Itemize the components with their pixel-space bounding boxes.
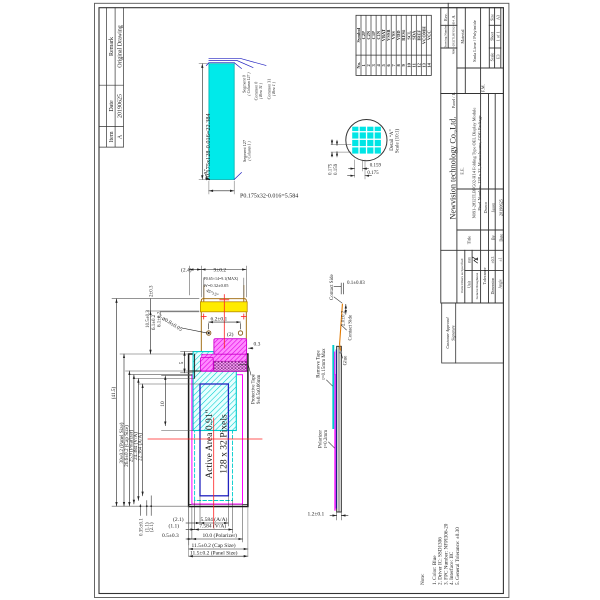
svg-text:(41.5): (41.5)	[110, 386, 117, 399]
svg-text:Jason: Jason	[491, 202, 496, 212]
svg-text:1.2±0.1: 1.2±0.1	[308, 512, 325, 518]
svg-text:Contact Side: Contact Side	[349, 314, 354, 340]
svg-text:(2.1): (2.1)	[173, 516, 184, 523]
svg-text:±0.3: ±0.3	[491, 256, 495, 263]
svg-text:P0.65×14=9.1(MAX): P0.65×14=9.1(MAX)	[204, 276, 239, 281]
svg-text:Soda Lime / Polyimide: Soda Lime / Polyimide	[472, 20, 477, 62]
svg-text:5.584 (A/A): 5.584 (A/A)	[201, 516, 228, 523]
svg-text:20190625: 20190625	[498, 199, 503, 216]
svg-text:F.M.: F.M.	[480, 84, 485, 92]
svg-text:t=0.15mm Max: t=0.15mm Max	[322, 348, 327, 380]
svg-text:( Row 31 ): ( Row 31 )	[259, 82, 263, 99]
svg-text:128 x 32 Pixels: 128 x 32 Pixels	[219, 414, 230, 474]
svg-text:Common 0: Common 0	[253, 82, 258, 101]
svg-text:0.159: 0.159	[370, 164, 382, 169]
svg-text:Detail “A”: Detail “A”	[389, 129, 395, 151]
svg-text:Drawn: Drawn	[483, 201, 488, 213]
svg-text:Drawing Number: Drawing Number	[444, 24, 448, 49]
svg-text:Date: Date	[109, 100, 115, 112]
svg-text:0.175: 0.175	[329, 163, 334, 175]
svg-text:9±0.2: 9±0.2	[214, 267, 227, 273]
svg-text:VCC: VCC	[426, 30, 431, 40]
svg-text:2±0.3: 2±0.3	[150, 285, 155, 297]
svg-text:A″: A″	[204, 169, 210, 175]
svg-text:Unit: Unit	[467, 280, 471, 288]
svg-text:2.0±0.2: 2.0±0.2	[342, 310, 347, 326]
svg-text:Protective Tape: Protective Tape	[252, 374, 257, 404]
svg-text:5: 5	[179, 361, 185, 364]
svg-text:Date: Date	[498, 234, 503, 242]
svg-text:( Column 127 ): ( Column 127 )	[247, 72, 251, 96]
svg-text:N091-2832TLBFG02-H14 Folding T: N091-2832TLBFG02-H14 Folding Type OEL Di…	[472, 108, 477, 219]
svg-text:Angle: Angle	[499, 279, 503, 289]
svg-text:Customer Approval: Customer Approval	[445, 317, 450, 349]
svg-text:9±0.5x0.06mm: 9±0.5x0.06mm	[257, 374, 262, 404]
svg-text:11.5±0.2 (Panel Size): 11.5±0.2 (Panel Size)	[190, 549, 238, 556]
svg-text:Units:Others as Specified: Units:Others as Specified	[460, 258, 464, 293]
svg-text:11.5±0.2 (Cap Size): 11.5±0.2 (Cap Size)	[192, 542, 236, 549]
svg-text:Remark: Remark	[109, 37, 115, 56]
svg-text:14: 14	[426, 62, 431, 67]
svg-text:E3: E3	[496, 54, 501, 59]
svg-text:Segment 127: Segment 127	[242, 140, 247, 162]
svg-text:±1: ±1	[499, 257, 503, 261]
svg-text:Newvision technology Co.,Ltd.: Newvision technology Co.,Ltd.	[449, 116, 458, 219]
svg-text:Material: Material	[460, 29, 465, 44]
svg-text:Scale: Scale	[490, 52, 495, 61]
svg-text:Note:: Note:	[420, 573, 426, 585]
svg-text:(2.1): (2.1)	[150, 522, 155, 532]
svg-text:E.E.: E.E.	[459, 167, 464, 174]
svg-text:0.3: 0.3	[254, 342, 261, 348]
svg-text:Size: Size	[490, 14, 495, 21]
svg-text:Dimension: Dimension	[491, 278, 495, 295]
svg-text:( Row 1 ): ( Row 1 )	[272, 81, 276, 96]
svg-text:6.2±0.1: 6.2±0.1	[211, 317, 228, 323]
svg-text:Signature: Signature	[451, 325, 456, 341]
svg-text:0.35±0.1: 0.35±0.1	[139, 518, 144, 536]
svg-text:A: A	[118, 134, 124, 139]
svg-text:( Column 1 ): ( Column 1 )	[247, 141, 251, 161]
svg-text:7.584 (V/A): 7.584 (V/A)	[199, 523, 226, 530]
svg-text:10: 10	[160, 401, 166, 407]
svg-text:P0.175x32-0.016=5.584: P0.175x32-0.016=5.584	[240, 194, 298, 200]
svg-text:22.384 (A/A): 22.384 (A/A)	[136, 433, 143, 461]
svg-text:(1.1): (1.1)	[169, 523, 180, 530]
svg-text:(2.4): (2.4)	[181, 266, 192, 273]
svg-text:mm: mm	[467, 257, 471, 263]
svg-text:0.159: 0.159	[334, 163, 339, 175]
svg-text:0.175: 0.175	[367, 171, 379, 176]
svg-text:0.5±0.3: 0.5±0.3	[162, 533, 179, 539]
svg-text:Segment 0: Segment 0	[241, 75, 246, 93]
svg-text:Tolerance: Tolerance	[482, 267, 487, 284]
svg-text:Sheet: Sheet	[490, 31, 495, 41]
svg-text:t=0.2mm: t=0.2mm	[324, 430, 329, 448]
svg-text:20190625: 20190625	[118, 94, 124, 118]
svg-text:5. General Tolerance: ±0.30: 5. General Tolerance: ±0.30	[455, 527, 461, 585]
svg-text:10.0 (Polarizer): 10.0 (Polarizer)	[203, 532, 238, 539]
svg-text:Glue: Glue	[344, 355, 349, 366]
svg-text:General Roughness: General Roughness	[475, 272, 479, 299]
svg-text:1 of 1: 1 of 1	[496, 31, 501, 41]
svg-text:(2): (2)	[227, 331, 234, 338]
svg-text:Remove Tape: Remove Tape	[317, 349, 322, 377]
svg-text:Common 31: Common 31	[266, 79, 271, 100]
svg-text:A3: A3	[496, 15, 501, 20]
svg-text:Panel / E.: Panel / E.	[451, 92, 456, 108]
svg-text:Rev.: Rev.	[443, 13, 448, 21]
svg-text:10.5±0.3: 10.5±0.3	[146, 310, 151, 328]
svg-text:Title: Title	[466, 236, 471, 245]
svg-text:Item: Item	[109, 131, 115, 142]
svg-text:N091-2832TLBFG02-H14: N091-2832TLBFG02-H14	[452, 20, 456, 55]
svg-text:Original Drawing: Original Drawing	[118, 25, 124, 68]
svg-text:Polarizer: Polarizer	[319, 430, 324, 448]
svg-text:Scale (10:1): Scale (10:1)	[396, 129, 401, 154]
svg-text:0.1±0.03: 0.1±0.03	[347, 281, 365, 286]
